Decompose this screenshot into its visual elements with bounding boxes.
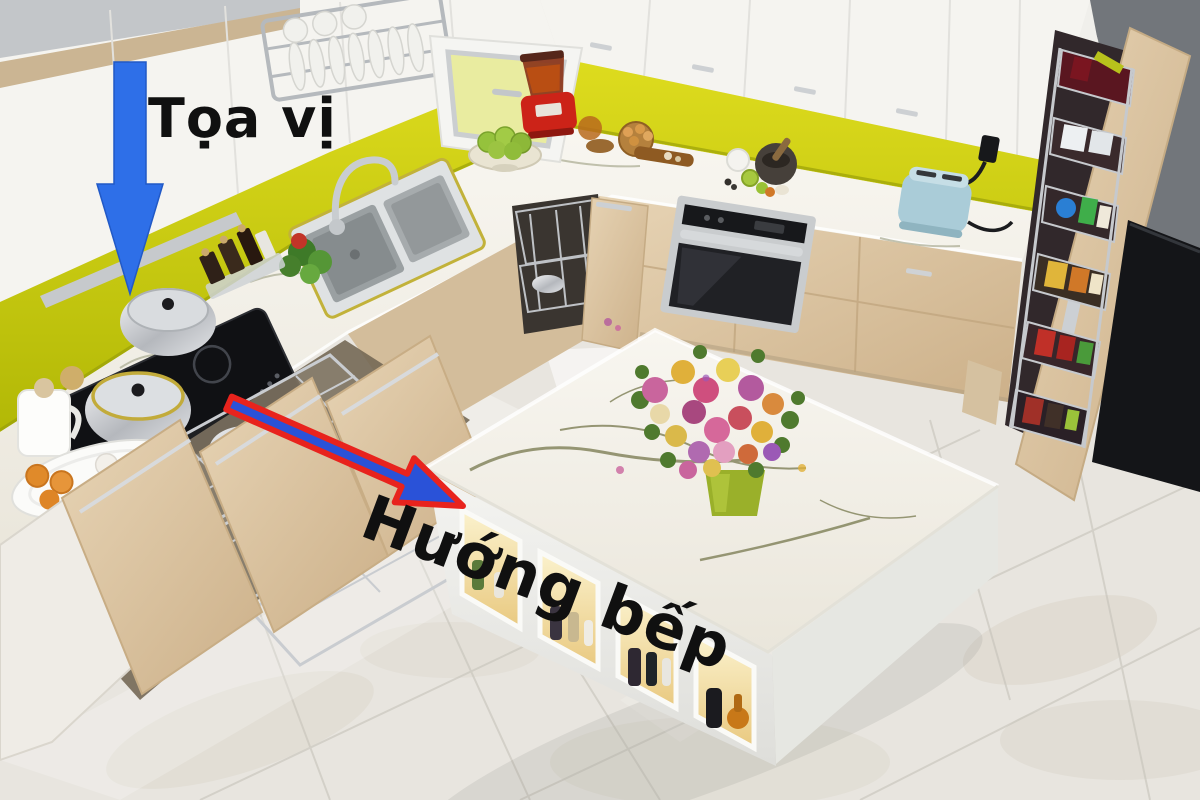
pot-back [120, 288, 216, 356]
kitchen-photo: Tọa vị Hướng bếp [0, 0, 1200, 800]
seat-label: Tọa vị [148, 92, 337, 146]
toaster [895, 165, 974, 239]
oven [660, 195, 817, 333]
amber-jar [578, 116, 602, 140]
